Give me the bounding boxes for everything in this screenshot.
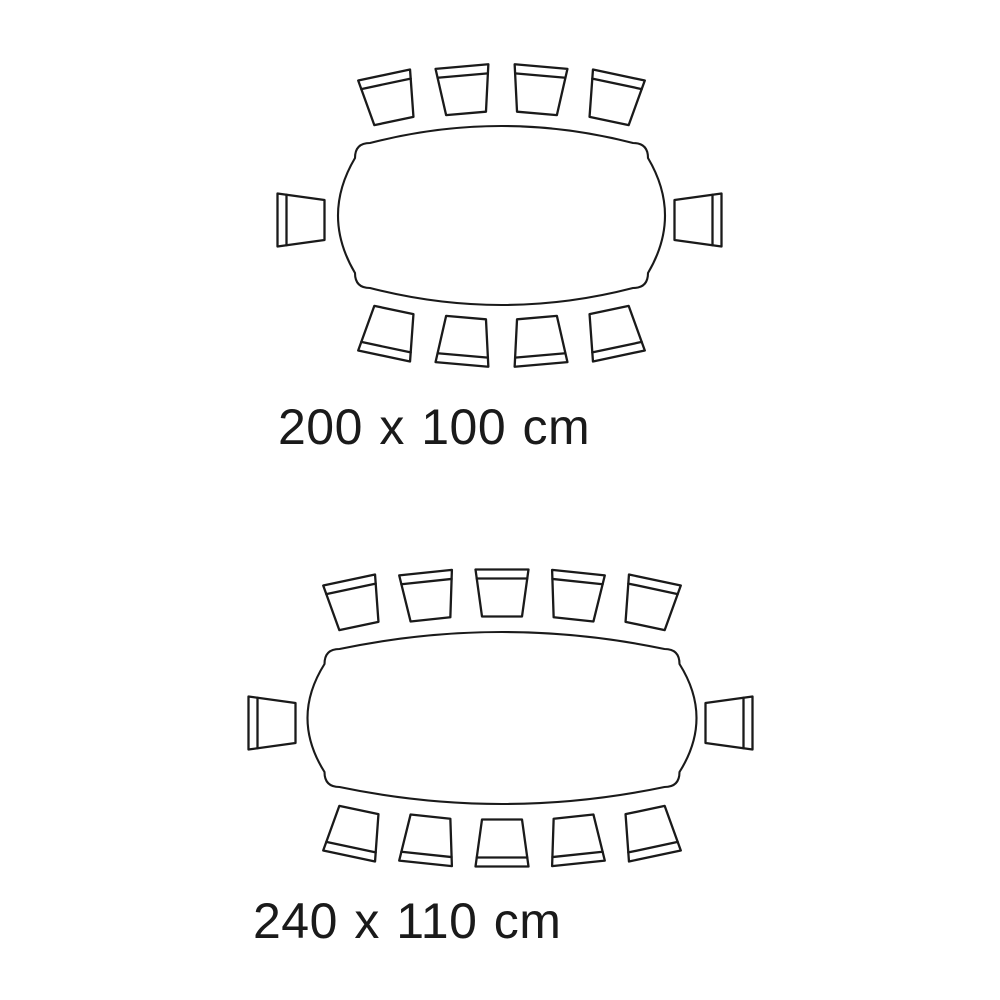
chair xyxy=(511,315,568,366)
chair xyxy=(399,814,457,866)
chair xyxy=(476,820,529,867)
chair xyxy=(619,805,681,862)
chair xyxy=(547,814,605,866)
chair-seat-outline xyxy=(476,820,529,867)
chair xyxy=(547,570,605,622)
table-240x110-shapes xyxy=(249,570,753,867)
size-label-240x110: 240 x 110 cm xyxy=(253,893,561,949)
table-outline xyxy=(308,632,697,804)
chair xyxy=(399,570,457,622)
chair-seat-outline xyxy=(511,315,568,366)
chair-seat-outline xyxy=(547,570,605,622)
chair xyxy=(323,575,385,632)
chair xyxy=(436,64,493,115)
chair-seat-outline xyxy=(675,194,722,247)
chair-seat-outline xyxy=(278,194,325,247)
chair xyxy=(249,697,296,750)
diagram-table-200x100: 200 x 100 cm xyxy=(278,64,722,455)
chair xyxy=(583,305,645,362)
chair xyxy=(619,575,681,632)
diagram-table-240x110: 240 x 110 cm xyxy=(249,570,753,950)
chair xyxy=(583,70,645,127)
chair-seat-outline xyxy=(706,697,753,750)
seating-capacity-diagrams: 200 x 100 cm 240 x 110 cm xyxy=(0,0,1000,1000)
chair-seat-outline xyxy=(399,570,457,622)
chair xyxy=(436,315,493,366)
chair-seat-outline xyxy=(436,315,493,366)
chair-seat-outline xyxy=(399,814,457,866)
chair xyxy=(675,194,722,247)
chair-seat-outline xyxy=(249,697,296,750)
chair xyxy=(358,70,420,127)
chair-seat-outline xyxy=(511,64,568,115)
chair-seat-outline xyxy=(547,814,605,866)
table-200x100-shapes xyxy=(278,64,722,366)
table-outline xyxy=(338,126,665,305)
chair-seat-outline xyxy=(436,64,493,115)
chair xyxy=(511,64,568,115)
chair-seat-outline xyxy=(476,570,529,617)
chair xyxy=(278,194,325,247)
chair xyxy=(476,570,529,617)
chair xyxy=(358,305,420,362)
chair xyxy=(323,805,385,862)
chair xyxy=(706,697,753,750)
diagram-canvas: 200 x 100 cm 240 x 110 cm xyxy=(0,0,1000,1000)
size-label-200x100: 200 x 100 cm xyxy=(278,399,590,455)
